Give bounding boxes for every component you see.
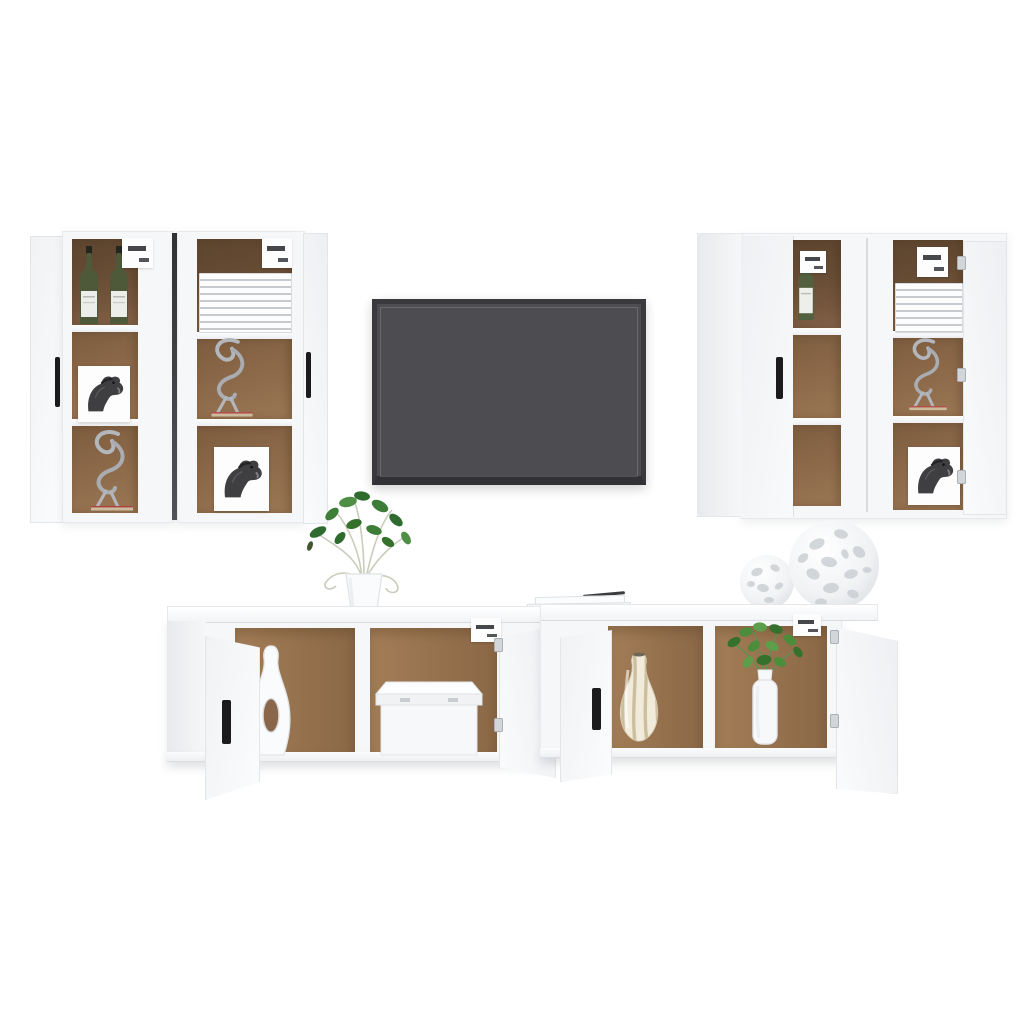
horse-picture bbox=[214, 447, 269, 511]
door-handle bbox=[306, 352, 311, 398]
magazine-stack bbox=[199, 273, 292, 333]
cabinet-c-middle-compartment bbox=[793, 335, 841, 418]
hinge bbox=[830, 714, 839, 728]
door-handle bbox=[222, 700, 231, 744]
hinge bbox=[830, 630, 839, 644]
tv-screen bbox=[372, 299, 646, 485]
storage-box bbox=[370, 676, 488, 758]
bottom-left-side-face bbox=[168, 621, 206, 759]
wall-mount-bracket bbox=[122, 238, 153, 268]
wall-mount-bracket bbox=[800, 251, 826, 273]
wire-sculpture bbox=[903, 336, 953, 412]
potted-plant-top bbox=[296, 486, 432, 618]
striped-vase bbox=[612, 650, 666, 750]
door-handle bbox=[592, 688, 601, 730]
hinge bbox=[494, 718, 503, 732]
wire-sculpture bbox=[204, 336, 260, 418]
wall-mount-bracket bbox=[917, 247, 948, 277]
wall-mount-bracket bbox=[793, 614, 821, 636]
bottom-right-open-door-left bbox=[560, 630, 612, 782]
bottom-left-open-door-left bbox=[205, 636, 260, 800]
hinge bbox=[957, 256, 966, 270]
potted-plant-small bbox=[720, 620, 808, 748]
product-photo-scene bbox=[0, 0, 1024, 1024]
hinge bbox=[957, 470, 966, 484]
bottom-right-open-door-right bbox=[836, 622, 898, 794]
horse-picture bbox=[78, 366, 130, 422]
horse-picture bbox=[908, 447, 960, 505]
wall-mount-bracket bbox=[262, 238, 292, 268]
right-unit-side-panel bbox=[697, 233, 743, 517]
wire-sculpture bbox=[84, 428, 140, 512]
hinge bbox=[957, 368, 966, 382]
right-unit-open-door bbox=[963, 241, 1007, 515]
decor-spheres bbox=[733, 518, 883, 614]
cabinet-gap bbox=[866, 238, 868, 512]
magazine-stack bbox=[895, 283, 963, 333]
door-handle bbox=[55, 357, 60, 407]
door-handle bbox=[776, 357, 783, 399]
cabinet-c-bottom-compartment bbox=[793, 425, 841, 506]
bottom-right-top-surface bbox=[540, 604, 878, 621]
right-unit-closed-door bbox=[741, 236, 794, 517]
hinge bbox=[494, 638, 503, 652]
